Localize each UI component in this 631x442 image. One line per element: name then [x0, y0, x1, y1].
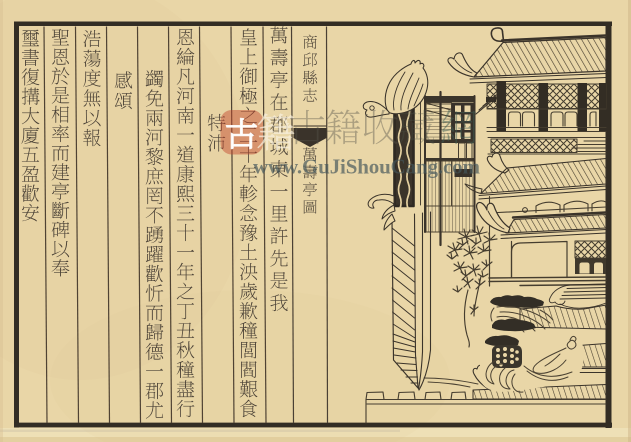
svg-text:www.GuJiShouCang.com: www.GuJiShouCang.com	[253, 155, 481, 179]
